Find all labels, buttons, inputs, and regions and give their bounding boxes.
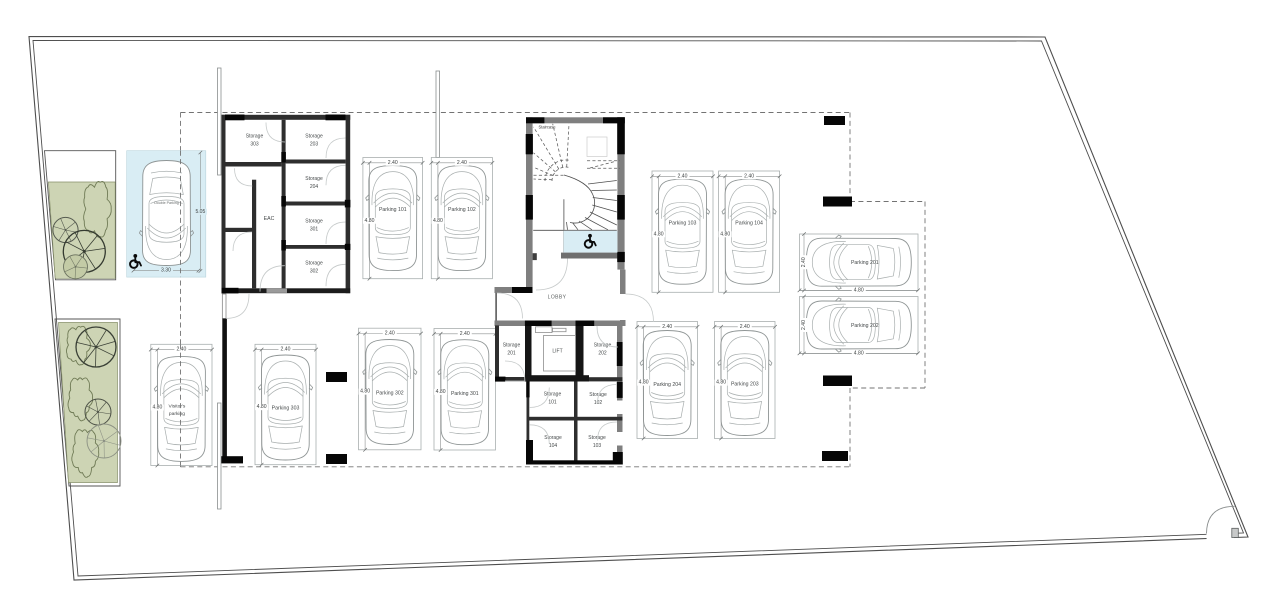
svg-text:102: 102 [594,400,603,406]
svg-text:4.80: 4.80 [654,231,664,237]
svg-text:103: 103 [593,443,602,449]
svg-text:2.40: 2.40 [281,347,291,353]
svg-text:202: 202 [598,351,607,357]
svg-text:parking: parking [169,411,185,417]
svg-text:2.40: 2.40 [801,257,807,267]
svg-text:201: 201 [507,351,516,357]
svg-text:104: 104 [549,443,558,449]
svg-text:EAC: EAC [264,216,275,222]
svg-text:LOBBY: LOBBY [548,295,567,301]
svg-text:Storage: Storage [305,176,323,182]
svg-text:4.80: 4.80 [365,218,375,224]
svg-text:2.40: 2.40 [662,324,672,330]
svg-text:Storage: Storage [544,435,562,441]
svg-text:4.80: 4.80 [854,287,864,293]
svg-text:2.40: 2.40 [460,331,470,337]
svg-text:301: 301 [310,227,319,233]
svg-text:Storage: Storage [503,343,521,349]
svg-text:Visitor's: Visitor's [168,404,185,410]
svg-text:Double Parking: Double Parking [154,201,179,205]
svg-text:4.80: 4.80 [360,389,370,395]
svg-text:302: 302 [310,269,319,275]
svg-text:Parking 101: Parking 101 [379,207,407,213]
svg-text:4.80: 4.80 [152,405,162,411]
svg-text:101: 101 [548,400,557,406]
svg-text:4.80: 4.80 [433,218,443,224]
svg-text:303: 303 [250,142,259,148]
svg-text:LIFT: LIFT [552,349,562,355]
svg-text:2.40: 2.40 [740,324,750,330]
svg-text:204: 204 [310,184,319,190]
svg-text:4.80: 4.80 [436,389,446,395]
svg-text:2.40: 2.40 [801,320,807,330]
svg-text:Parking 203: Parking 203 [731,382,759,388]
svg-text:4.80: 4.80 [257,404,267,410]
svg-text:2.40: 2.40 [744,173,754,179]
svg-text:4.80: 4.80 [639,380,649,386]
svg-text:2.40: 2.40 [176,347,186,353]
svg-text:Storage: Storage [246,134,264,140]
svg-text:Parking 201: Parking 201 [851,260,879,266]
svg-text:Parking 204: Parking 204 [653,382,681,388]
svg-text:203: 203 [310,142,319,148]
svg-text:Parking 303: Parking 303 [272,406,300,412]
svg-text:4.80: 4.80 [854,350,864,356]
svg-text:2.40: 2.40 [385,331,395,337]
svg-text:4.80: 4.80 [716,380,726,386]
svg-text:Storage: Storage [305,261,323,267]
svg-text:4.80: 4.80 [720,231,730,237]
svg-text:Parking 103: Parking 103 [669,221,697,227]
svg-text:5.05: 5.05 [195,209,205,215]
svg-text:Parking 104: Parking 104 [735,221,763,227]
svg-text:Parking 202: Parking 202 [851,323,879,329]
svg-text:2.40: 2.40 [678,173,688,179]
svg-text:3.30: 3.30 [161,268,171,274]
svg-text:Storage: Storage [305,219,323,225]
svg-text:Parking 102: Parking 102 [448,207,476,213]
svg-text:Parking 301: Parking 301 [451,391,479,397]
svg-text:Parking 302: Parking 302 [376,391,404,397]
svg-text:Storage: Storage [305,134,323,140]
svg-text:Storage: Storage [544,392,562,398]
svg-text:2.40: 2.40 [388,160,398,166]
svg-text:2.40: 2.40 [457,160,467,166]
